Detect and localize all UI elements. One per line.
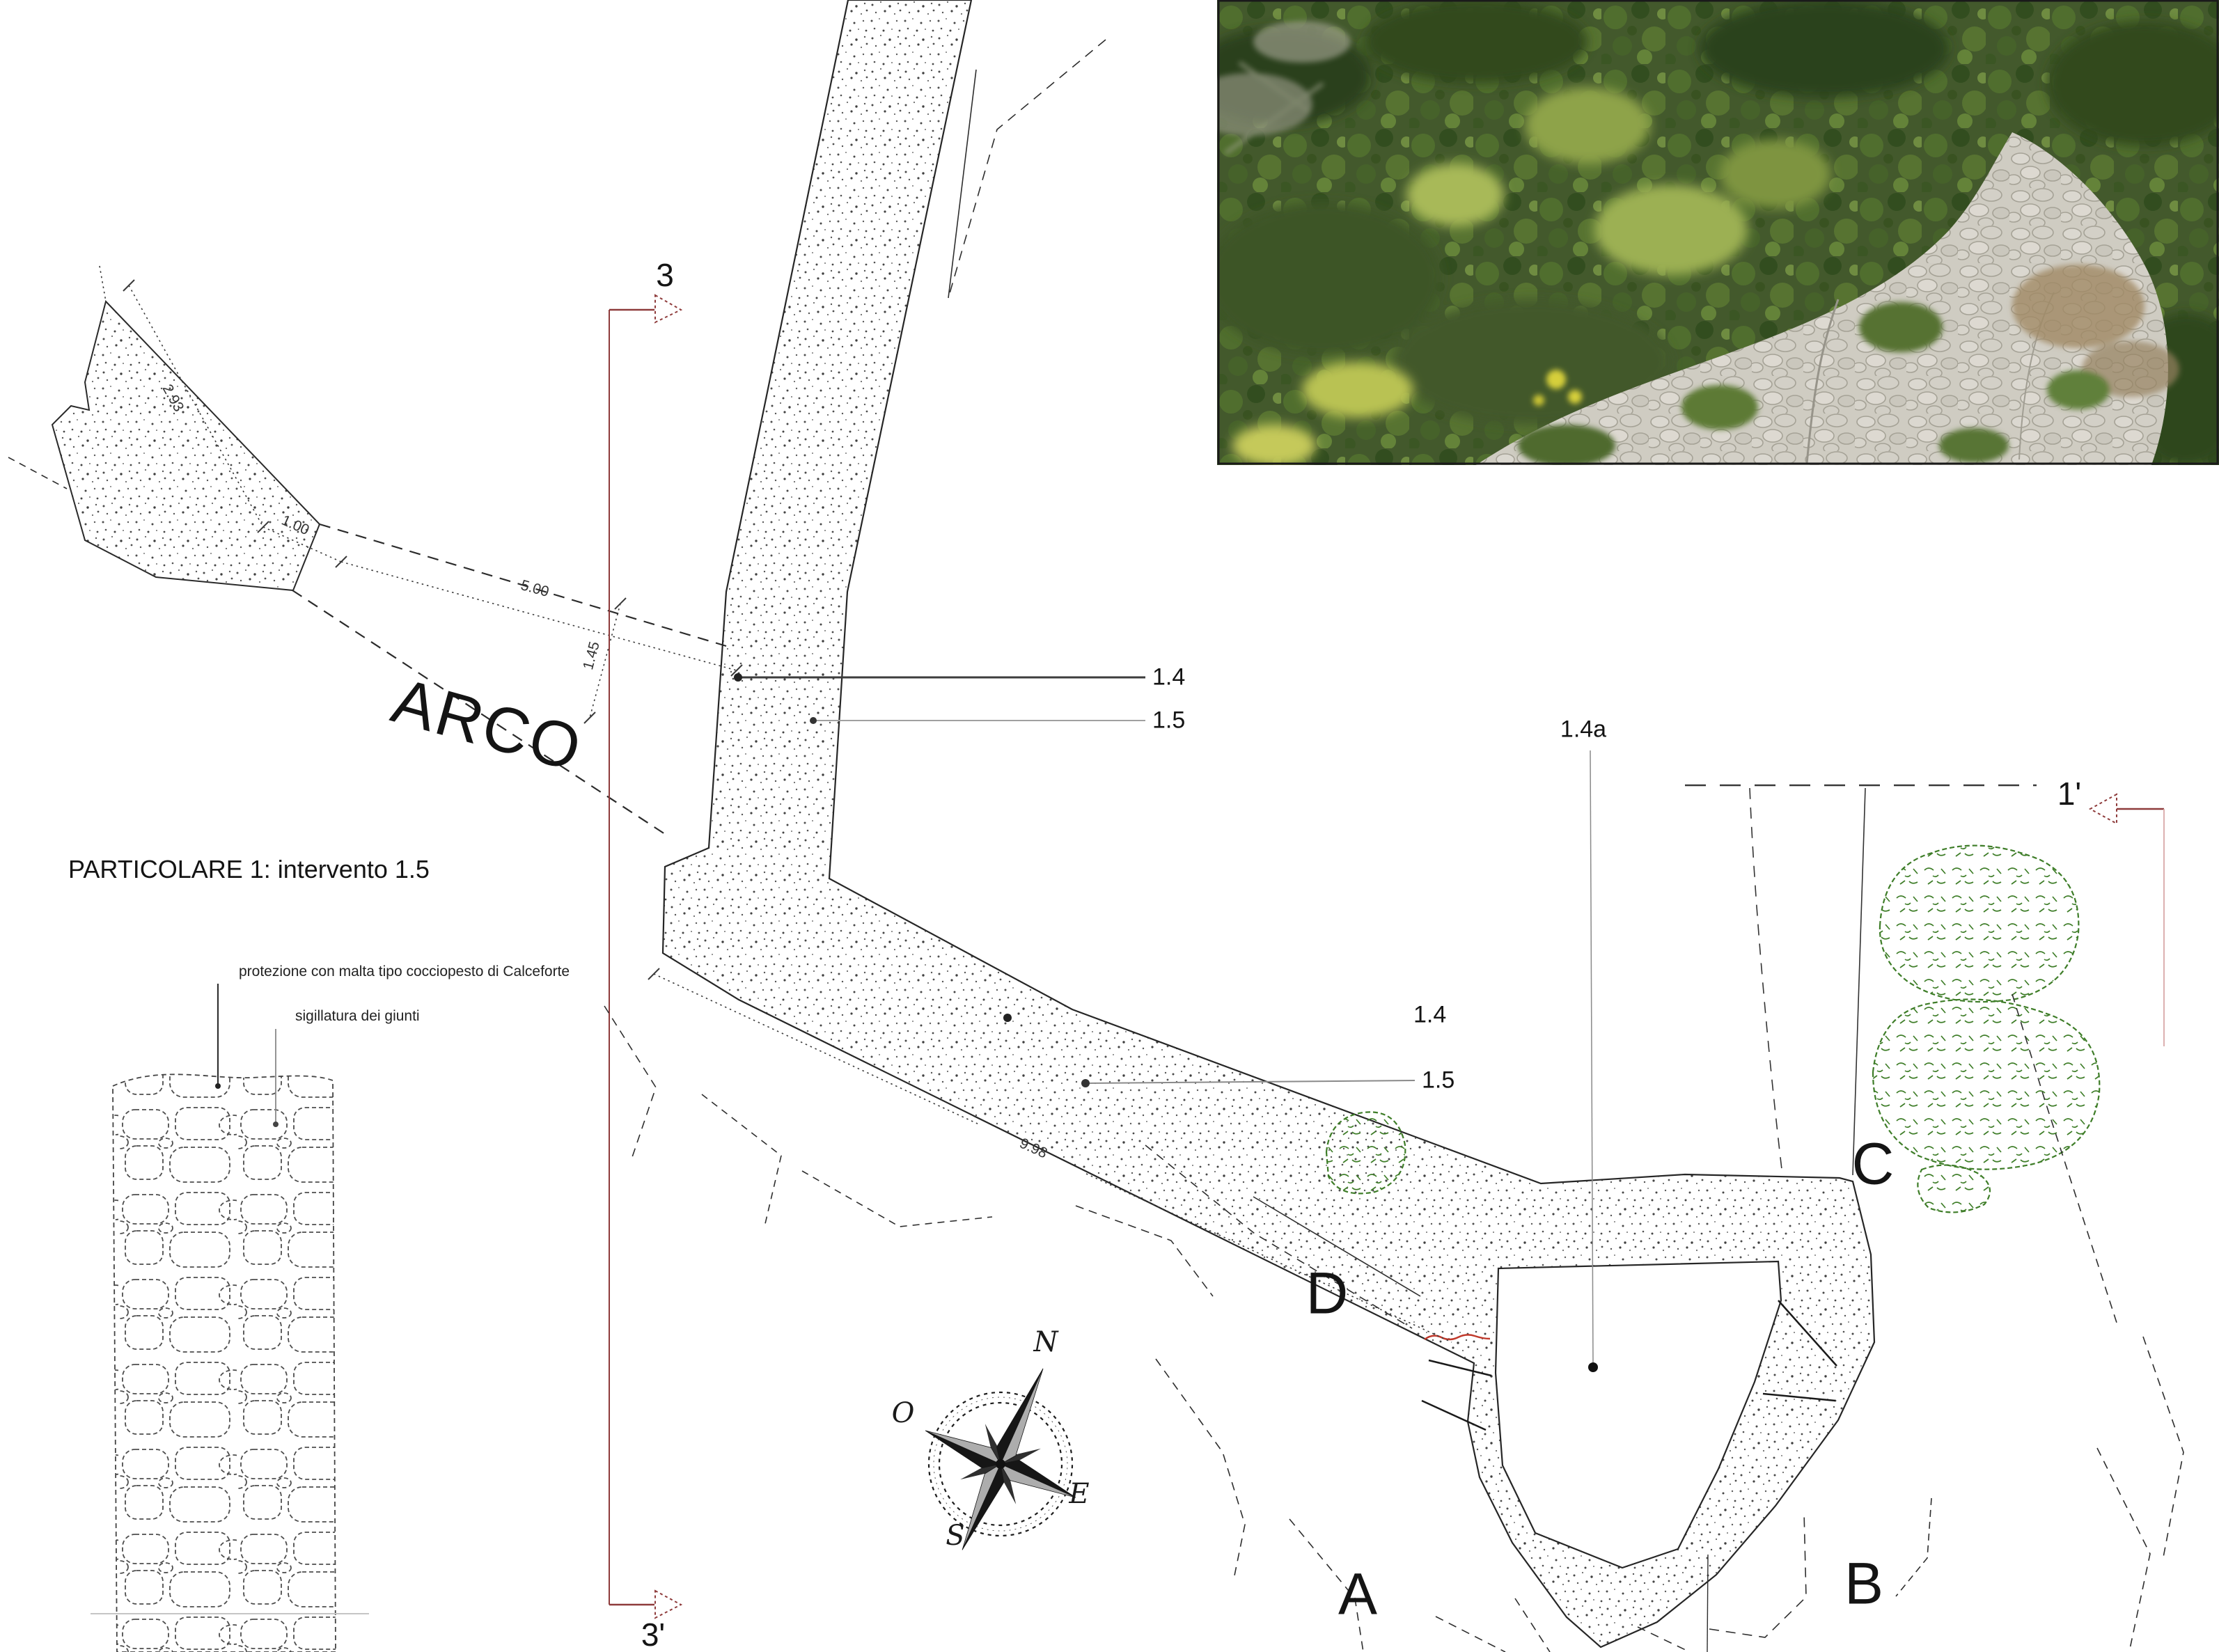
leader-label-15-top: 1.5 bbox=[1152, 707, 1185, 734]
compass-letter-o: O bbox=[892, 1397, 915, 1429]
compass-letter-n: N bbox=[1034, 1326, 1058, 1358]
aerial-photo bbox=[1187, 0, 2219, 466]
compass-letter-s: S bbox=[946, 1520, 964, 1552]
leader-label-14a: 1.4a bbox=[1560, 716, 1606, 744]
leader-label-14-top: 1.4 bbox=[1152, 664, 1185, 691]
area-label-c: C bbox=[1852, 1131, 1895, 1198]
compass-letter-e: E bbox=[1069, 1478, 1089, 1510]
area-label-b: B bbox=[1844, 1550, 1883, 1618]
detail-annotation-protection: protezione con malta tipo cocciopesto di… bbox=[239, 963, 570, 980]
section-marker-3p-label: 3' bbox=[641, 1616, 665, 1652]
detail-title: PARTICOLARE 1: intervento 1.5 bbox=[68, 855, 430, 884]
site-plan-canvas bbox=[0, 0, 2219, 1652]
area-label-d: D bbox=[1306, 1260, 1349, 1328]
leader-label-14-mid: 1.4 bbox=[1413, 1002, 1446, 1029]
detail-annotation-joints: sigillatura dei giunti bbox=[295, 1008, 420, 1025]
section-marker-3-label: 3 bbox=[656, 256, 674, 294]
wall-fragment-upper-left bbox=[52, 301, 320, 590]
north-arrow-compass bbox=[887, 1335, 1118, 1583]
compass-cardinal-points bbox=[887, 1335, 1118, 1583]
drawing-sheet: PARTICOLARE 1: intervento 1.5 protezione… bbox=[0, 0, 2219, 1652]
detail-stone-wall bbox=[91, 984, 369, 1652]
section-line-1 bbox=[2090, 794, 2164, 1046]
arco-corridor-lines bbox=[292, 524, 726, 835]
leader-label-15-mid: 1.5 bbox=[1422, 1067, 1454, 1094]
area-label-a: A bbox=[1338, 1561, 1377, 1628]
section-marker-1p-label: 1' bbox=[2057, 775, 2081, 812]
